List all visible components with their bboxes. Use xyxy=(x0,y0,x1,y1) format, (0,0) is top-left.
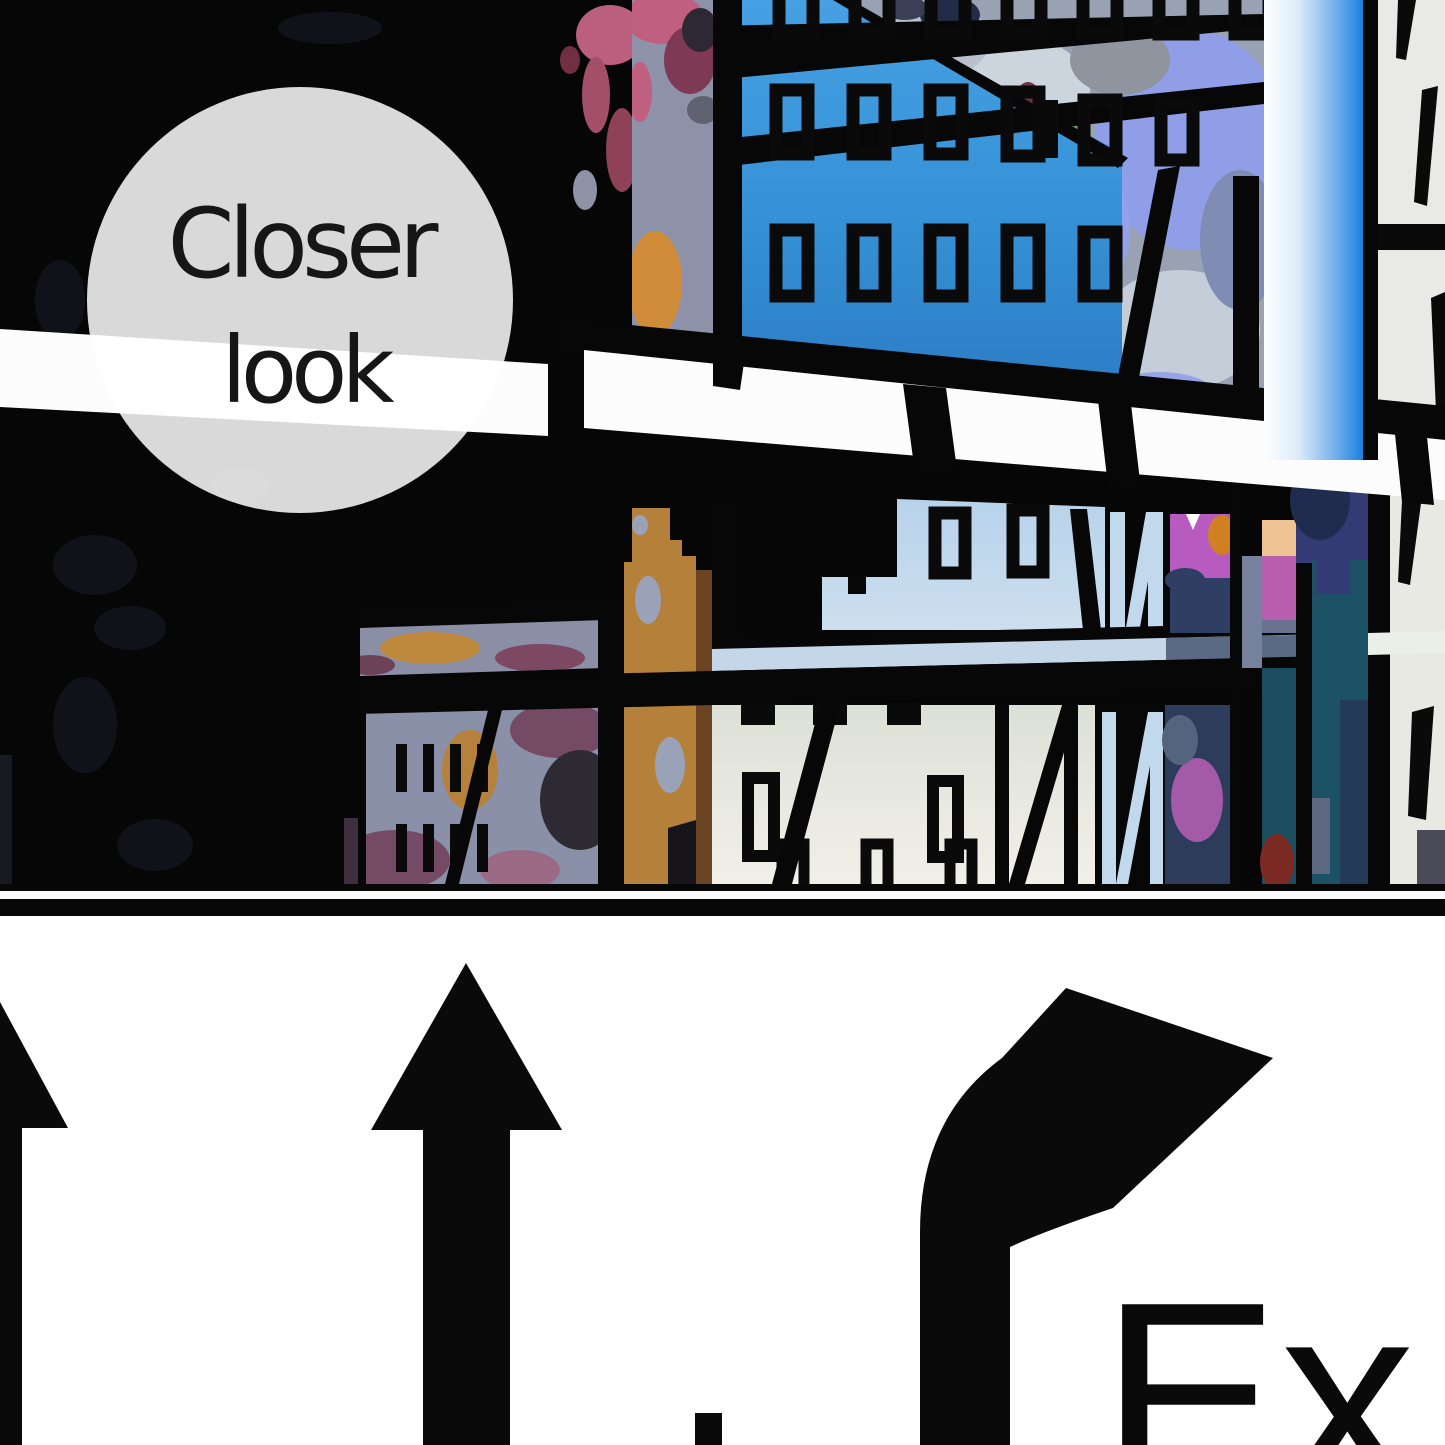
badge-circle xyxy=(87,87,513,513)
poster-detail-crop: Closer look Ex xyxy=(0,0,1445,1445)
lavender-panel xyxy=(624,0,719,356)
straight-ahead-arrow-icon xyxy=(371,963,562,1445)
cityscape-illustration: Closer look xyxy=(0,0,1445,891)
light-facade-lower xyxy=(712,703,1165,891)
blue-gradient-light-strip xyxy=(1264,0,1363,460)
straight-ahead-arrow-icon xyxy=(0,1002,68,1445)
poster-detail-image: Closer look Ex xyxy=(0,0,1445,1445)
mullion-stub xyxy=(1038,100,1058,158)
band-tab xyxy=(713,352,745,390)
separator xyxy=(0,884,1445,916)
camo-building xyxy=(340,598,624,890)
dark-sliver xyxy=(0,755,12,884)
orange-leaf-blob xyxy=(628,231,682,335)
badge-text-line1: Closer xyxy=(168,188,440,300)
exit-label: Ex xyxy=(1100,1247,1415,1445)
badge-text-line2: look xyxy=(221,317,395,424)
closer-look-badge: Closer look xyxy=(87,87,513,513)
emerging-arrow-tip-icon xyxy=(695,1413,722,1445)
strip-edge-bar xyxy=(1363,0,1378,460)
plum-sliver xyxy=(344,818,358,884)
road-sign-section: Ex xyxy=(0,963,1415,1445)
